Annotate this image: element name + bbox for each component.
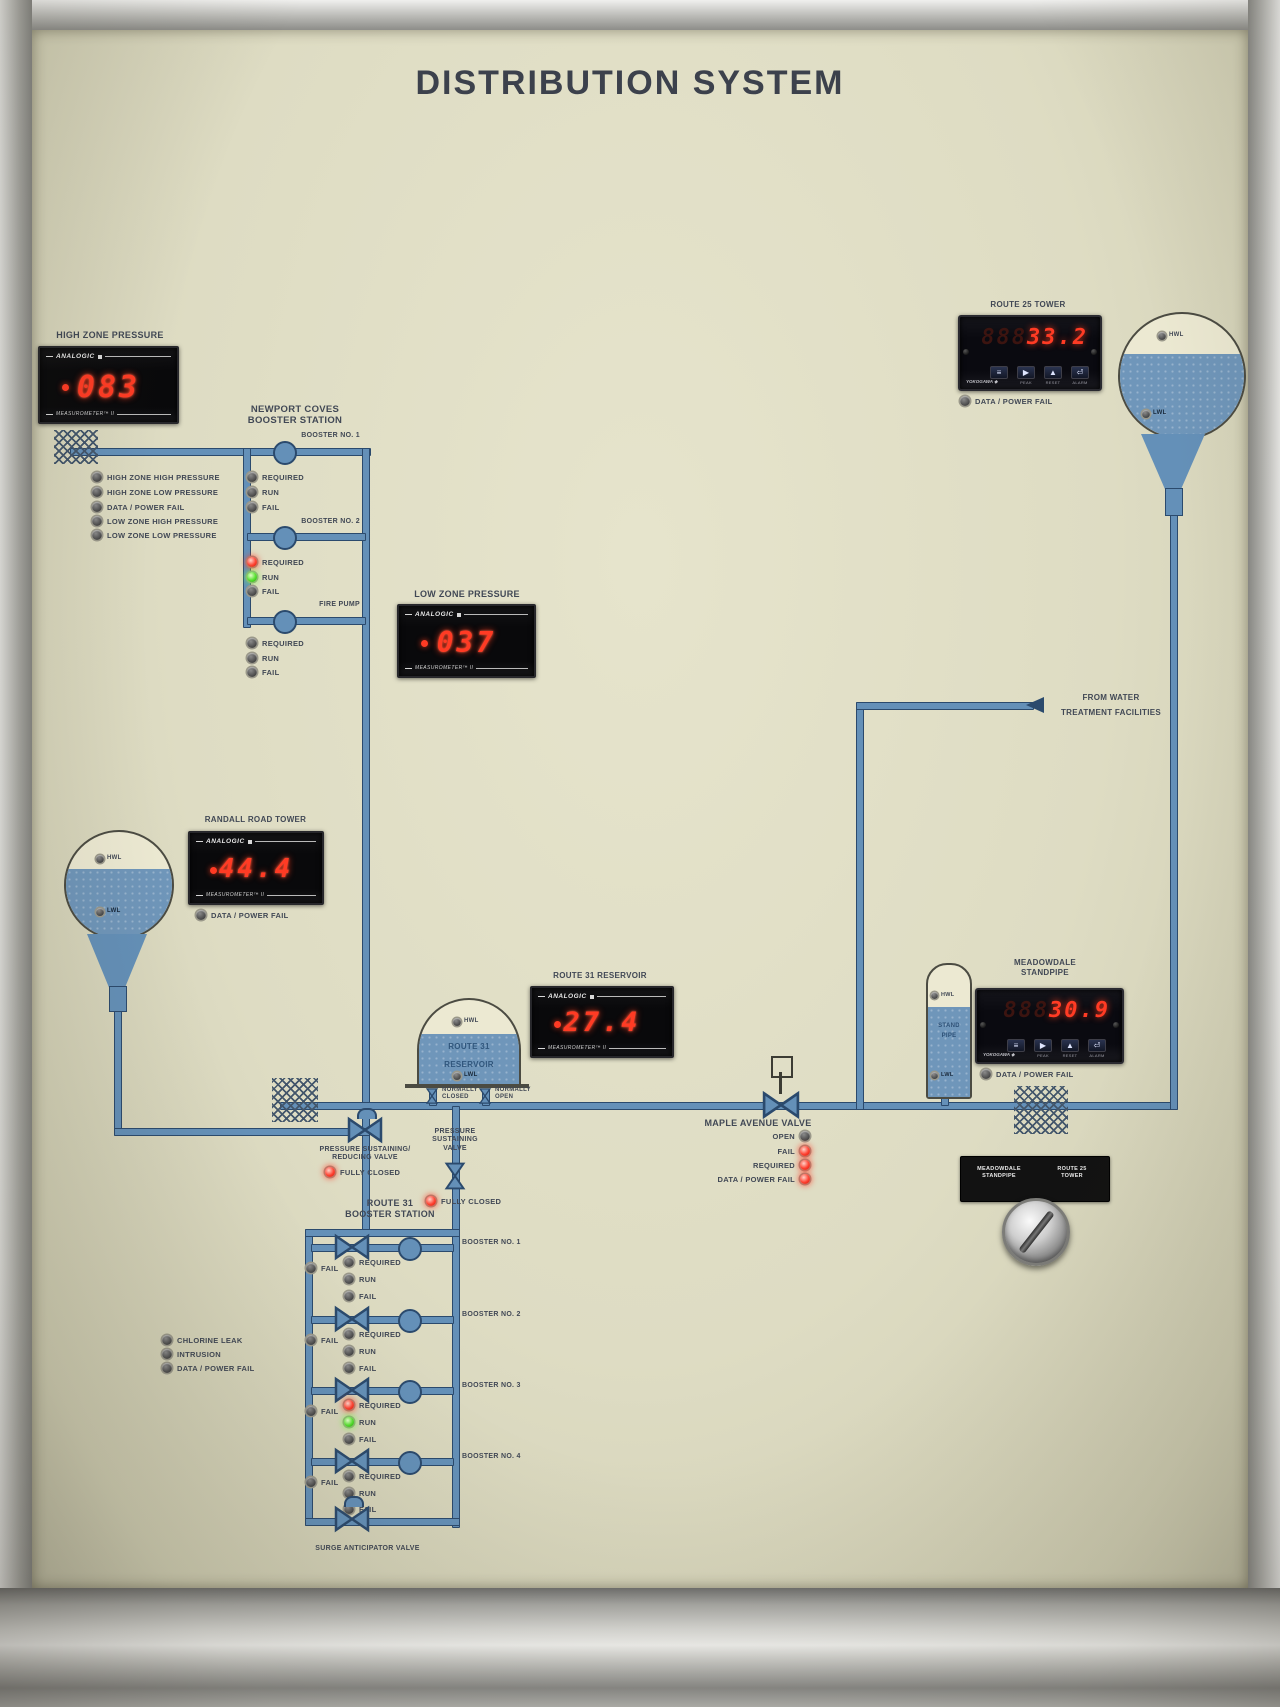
option-line: TOWER xyxy=(1041,1173,1103,1180)
pipe-route25-riser xyxy=(1170,512,1178,1110)
fully-closed-led xyxy=(325,1167,335,1177)
randall-level-meter: ANALOGIC 44.4 MEASUROMETER™ II xyxy=(188,831,324,905)
maple-row-datafail: DATA / POWER FAIL xyxy=(672,1174,810,1184)
booster2-light-row: FAIL xyxy=(344,1363,376,1373)
peak-button[interactable]: ▶ xyxy=(1034,1039,1052,1052)
yokogawa-brand: YOKOGAWA ◆ xyxy=(983,1052,1015,1058)
pipe-fromwater-riser xyxy=(856,702,864,1110)
label-line: REDUCING VALVE xyxy=(292,1154,438,1162)
title-line: ROUTE 31 xyxy=(330,1198,450,1209)
hwl-led xyxy=(453,1018,461,1026)
screw-icon xyxy=(963,349,969,355)
page-title: DISTRIBUTION SYSTEM xyxy=(390,64,870,103)
status-led xyxy=(247,653,257,663)
pipe-booster-branch-2 xyxy=(311,1316,454,1324)
analogic-brand: ANALOGIC xyxy=(206,838,245,845)
ps-reducing-valve-label: PRESSURE SUSTAINING/ REDUCING VALVE xyxy=(292,1146,438,1163)
alarm-led xyxy=(162,1363,172,1373)
status-led xyxy=(344,1417,354,1427)
zone-alarm-row: LOW ZONE HIGH PRESSURE xyxy=(92,516,218,526)
status-led xyxy=(344,1400,354,1410)
fail-label: FAIL xyxy=(321,1264,338,1273)
fire-pump-light-row: RUN xyxy=(247,653,279,663)
lwl-led xyxy=(931,1072,938,1079)
alarm-label: LOW ZONE LOW PRESSURE xyxy=(107,531,217,540)
fail-led xyxy=(306,1335,316,1345)
fail-led xyxy=(306,1263,316,1273)
hwl-led xyxy=(96,855,104,863)
status-led xyxy=(344,1434,354,1444)
status-label: RUN xyxy=(262,488,279,497)
randall-meter-label: RANDALL ROAD TOWER xyxy=(193,815,318,825)
hwl-label: HWL xyxy=(941,992,954,999)
hwl-led xyxy=(1158,332,1166,340)
meter-footer-row: MEASUROMETER™ II xyxy=(538,1045,666,1051)
status-led xyxy=(344,1291,354,1301)
status-led xyxy=(247,638,257,648)
route25-value: 33.2 xyxy=(1027,325,1088,350)
status-led xyxy=(344,1363,354,1373)
alarm-button[interactable]: ⏎ xyxy=(1088,1039,1106,1052)
display-button[interactable]: ≡ xyxy=(990,366,1008,379)
booster2-fail-row: FAIL xyxy=(306,1335,338,1345)
booster2-light-row: FAIL xyxy=(247,586,279,596)
status-label: REQUIRED xyxy=(359,1258,401,1267)
booster2-pump-icon xyxy=(398,1309,422,1333)
status-label: FAIL xyxy=(262,503,279,512)
yokogawa-brand: YOKOGAWA ◆ xyxy=(966,379,998,385)
fail-label: FAIL xyxy=(321,1336,338,1345)
pipe-randall-riser xyxy=(114,1008,122,1136)
ps-reducing-valve-icon xyxy=(347,1116,383,1144)
fully-closed-label: FULLY CLOSED xyxy=(441,1197,501,1206)
pipe-booster-branch-1 xyxy=(311,1244,454,1252)
frame-bottom xyxy=(0,1588,1280,1707)
row-led xyxy=(800,1160,810,1170)
frame-left xyxy=(0,0,32,1707)
status-label: REQUIRED xyxy=(359,1401,401,1410)
zone-alarm-row: LOW ZONE LOW PRESSURE xyxy=(92,530,217,540)
status-led xyxy=(344,1471,354,1481)
fail-label: DATA / POWER FAIL xyxy=(211,911,288,920)
label-line: SUSTAINING xyxy=(420,1136,490,1144)
fail-label: DATA / POWER FAIL xyxy=(996,1070,1073,1079)
randall-value: 44.4 xyxy=(190,854,322,884)
station-alarm-row: CHLORINE LEAK xyxy=(162,1335,243,1345)
meter-footer-row: MEASUROMETER™ II xyxy=(405,665,528,671)
label-line: OPEN xyxy=(495,1094,541,1101)
meter-brand-row: ANALOGIC xyxy=(196,838,316,845)
status-label: REQUIRED xyxy=(262,558,304,567)
normally-closed-valve-icon xyxy=(424,1089,440,1103)
booster3-pump-icon xyxy=(398,1380,422,1404)
alarm-led xyxy=(92,516,102,526)
button-label: RESET xyxy=(1063,1053,1078,1058)
label-line: PRESSURE SUSTAINING/ xyxy=(292,1146,438,1154)
meter-brand-row: ANALOGIC xyxy=(405,611,528,618)
reservoir-name-line2: RESERVOIR xyxy=(419,1060,519,1070)
maple-valve-title: MAPLE AVENUE VALVE xyxy=(678,1118,838,1129)
booster3-light-row: FAIL xyxy=(344,1434,376,1444)
booster2-light-row: REQUIRED xyxy=(247,557,304,567)
station-alarm-row: INTRUSION xyxy=(162,1349,221,1359)
station-booster4-name: BOOSTER NO. 4 xyxy=(462,1453,562,1461)
fire-pump-light-row: REQUIRED xyxy=(247,638,304,648)
maple-valve-icon xyxy=(762,1090,800,1120)
meter-footer-row: MEASUROMETER™ II xyxy=(46,411,171,417)
ghost-digits: 888 xyxy=(1003,998,1049,1023)
fail-led xyxy=(196,910,206,920)
high-zone-pressure-label: HIGH ZONE PRESSURE xyxy=(48,330,172,341)
randall-hwl: HWL xyxy=(96,855,122,863)
status-label: RUN xyxy=(359,1275,376,1284)
alarm-label: DATA / POWER FAIL xyxy=(177,1364,254,1373)
maple-row-fail: FAIL xyxy=(672,1146,810,1156)
reservoir-lwl: LWL xyxy=(453,1072,478,1080)
status-label: FAIL xyxy=(359,1364,376,1373)
randall-lwl: LWL xyxy=(96,908,121,916)
button-label: ALARM xyxy=(1072,380,1087,385)
hwl-label: HWL xyxy=(107,855,122,862)
maple-valve-actuator xyxy=(771,1056,793,1078)
newport-title-line2: BOOSTER STATION xyxy=(225,415,365,426)
measurometer-label: MEASUROMETER™ II xyxy=(415,665,473,671)
alarm-led xyxy=(92,472,102,482)
fully-closed-label: FULLY CLOSED xyxy=(340,1168,400,1177)
surge-valve-icon xyxy=(334,1505,370,1533)
route25-hwl: HWL xyxy=(1158,332,1184,340)
frame-top xyxy=(0,0,1280,30)
option-line: ROUTE 25 xyxy=(1041,1166,1103,1173)
low-zone-pressure-label: LOW ZONE PRESSURE xyxy=(402,589,532,600)
reservoir-name-line1: ROUTE 31 xyxy=(419,1042,519,1052)
measurometer-label: MEASUROMETER™ II xyxy=(206,892,264,898)
fail-led xyxy=(960,396,970,406)
route25-digits: 88833.2 xyxy=(981,325,1088,350)
randall-tower-stem-base xyxy=(109,986,127,1012)
status-label: FAIL xyxy=(262,668,279,677)
alarm-label: HIGH ZONE HIGH PRESSURE xyxy=(107,473,220,482)
route25-tower-label: ROUTE 25 TOWER xyxy=(958,300,1098,310)
alarm-led xyxy=(162,1349,172,1359)
status-led xyxy=(344,1346,354,1356)
booster3-light-row: REQUIRED xyxy=(344,1400,401,1410)
label-line2: STANDPIPE xyxy=(980,968,1110,978)
booster1-light-row: FAIL xyxy=(344,1291,376,1301)
randall-tower-symbol xyxy=(64,830,174,940)
status-led xyxy=(247,472,257,482)
booster2-light-row: RUN xyxy=(344,1346,376,1356)
route31-level-meter: ANALOGIC 27.4 MEASUROMETER™ II xyxy=(530,986,674,1058)
row-label: REQUIRED xyxy=(753,1161,795,1170)
status-label: FAIL xyxy=(262,587,279,596)
status-led xyxy=(344,1257,354,1267)
meter-brand-row: ANALOGIC xyxy=(538,993,666,1000)
status-led xyxy=(247,487,257,497)
analogic-brand: ANALOGIC xyxy=(56,353,95,360)
from-water-line1: FROM WATER xyxy=(1046,693,1176,703)
pipe-firepump-branch xyxy=(247,617,366,625)
booster1-pump-icon xyxy=(273,441,297,465)
standpipe-text-line1: STAND xyxy=(928,1023,970,1030)
zone-boundary-hatch-west xyxy=(272,1078,318,1122)
label-line: NORMALLY xyxy=(442,1087,488,1094)
pipe-booster-branch-3 xyxy=(311,1387,454,1395)
route25-lwl: LWL xyxy=(1142,410,1167,418)
measurometer-label: MEASUROMETER™ II xyxy=(548,1045,606,1051)
hwl-label: HWL xyxy=(1169,332,1184,339)
hwl-label: HWL xyxy=(464,1018,479,1025)
maple-row-required: REQUIRED xyxy=(672,1160,810,1170)
status-led xyxy=(247,572,257,582)
station-alarm-row: DATA / POWER FAIL xyxy=(162,1363,254,1373)
row-led xyxy=(800,1131,810,1141)
randall-fail-row: DATA / POWER FAIL xyxy=(196,910,288,920)
alarm-led xyxy=(162,1335,172,1345)
booster1-light-row: RUN xyxy=(344,1274,376,1284)
row-led xyxy=(800,1146,810,1156)
fire-pump-icon xyxy=(273,610,297,634)
status-led xyxy=(344,1329,354,1339)
label-line: PRESSURE xyxy=(420,1128,490,1136)
lwl-led xyxy=(96,908,104,916)
alarm-label: DATA / POWER FAIL xyxy=(107,503,184,512)
route31-station-title: ROUTE 31 BOOSTER STATION xyxy=(330,1198,450,1220)
status-label: RUN xyxy=(359,1418,376,1427)
status-led xyxy=(344,1274,354,1284)
status-label: RUN xyxy=(262,573,279,582)
booster4-fail-row: FAIL xyxy=(306,1477,338,1487)
row-label: FAIL xyxy=(778,1147,795,1156)
fire-pump-light-row: FAIL xyxy=(247,667,279,677)
lwl-label: LWL xyxy=(107,908,121,915)
lwl-label: LWL xyxy=(1153,410,1167,417)
route31-value: 27.4 xyxy=(532,1007,672,1038)
booster2-name: BOOSTER NO. 2 xyxy=(255,518,360,526)
screw-icon xyxy=(1091,349,1097,355)
station-booster3-name: BOOSTER NO. 3 xyxy=(462,1382,562,1390)
meadowdale-level-meter: 88830.9 ≡ ▶PEAK ▲RESET ⏎ALARM YOKOGAWA ◆ xyxy=(975,988,1124,1064)
status-label: RUN xyxy=(359,1489,376,1498)
pipe-highzone-main xyxy=(70,448,371,456)
status-label: FAIL xyxy=(359,1435,376,1444)
lwl-led xyxy=(453,1072,461,1080)
newport-station-title: NEWPORT COVES BOOSTER STATION xyxy=(225,404,365,427)
pipe-loop-top xyxy=(305,1229,460,1237)
route25-level-meter: 88833.2 ≡ ▶PEAK ▲RESET ⏎ALARM YOKOGAWA ◆ xyxy=(958,315,1102,391)
high-zone-pressure-value: 083 xyxy=(40,370,177,405)
alarm-led xyxy=(92,487,102,497)
water-level xyxy=(928,1007,970,1097)
fire-pump-name: FIRE PUMP xyxy=(255,601,360,609)
frame-right xyxy=(1248,0,1280,1707)
booster4-light-row: REQUIRED xyxy=(344,1471,401,1481)
hwl-led xyxy=(931,992,938,999)
fail-led xyxy=(306,1406,316,1416)
measurometer-label: MEASUROMETER™ II xyxy=(56,411,114,417)
pipe-booster2-branch xyxy=(247,533,366,541)
row-label: DATA / POWER FAIL xyxy=(718,1175,795,1184)
alarm-led xyxy=(92,502,102,512)
knob-pointer xyxy=(1018,1210,1054,1254)
fail-label: FAIL xyxy=(321,1407,338,1416)
meadowdale-meter-label: MEADOWDALE STANDPIPE xyxy=(980,958,1110,977)
fail-led xyxy=(306,1477,316,1487)
fail-led xyxy=(981,1069,991,1079)
screw-icon xyxy=(1113,1022,1119,1028)
maple-row-open: OPEN xyxy=(672,1131,810,1141)
row-label: OPEN xyxy=(773,1132,795,1141)
status-led xyxy=(247,502,257,512)
meter-buttons: ≡ ▶PEAK ▲RESET ⏎ALARM xyxy=(990,366,1089,385)
zone-alarm-row: DATA / POWER FAIL xyxy=(92,502,184,512)
lwl-label: LWL xyxy=(941,1072,954,1079)
status-label: RUN xyxy=(359,1347,376,1356)
selector-switch-plate: MEADOWDALE STANDPIPE ROUTE 25 TOWER xyxy=(960,1156,1110,1202)
booster2-pump-icon xyxy=(273,526,297,550)
low-zone-pressure-meter: ANALOGIC 037 MEASUROMETER™ II xyxy=(397,604,536,678)
from-water-line2: TREATMENT FACILITIES xyxy=(1038,708,1184,718)
display-button[interactable]: ≡ xyxy=(1007,1039,1025,1052)
button-label: PEAK xyxy=(1020,380,1032,385)
analogic-brand: ANALOGIC xyxy=(415,611,454,618)
booster1-fail-row: FAIL xyxy=(306,1263,338,1273)
pipe-booster-branch-4 xyxy=(311,1458,454,1466)
normally-closed-label: NORMALLYCLOSED xyxy=(442,1087,488,1101)
status-led xyxy=(247,557,257,567)
screw-icon xyxy=(980,1022,986,1028)
selector-knob[interactable] xyxy=(1002,1198,1070,1266)
normally-open-label: NORMALLYOPEN xyxy=(495,1087,541,1101)
booster1-light-row: REQUIRED xyxy=(344,1257,401,1267)
water-level xyxy=(1120,354,1244,438)
route31-meter-label: ROUTE 31 RESERVOIR xyxy=(525,971,675,981)
ps-reducing-fully-closed: FULLY CLOSED xyxy=(325,1167,400,1177)
surge-valve-label: SURGE ANTICIPATOR VALVE xyxy=(280,1545,455,1553)
pipe-fromwater-line xyxy=(856,702,1034,710)
alarm-label: LOW ZONE HIGH PRESSURE xyxy=(107,517,218,526)
booster3-fail-row: FAIL xyxy=(306,1406,338,1416)
peak-button[interactable]: ▶ xyxy=(1017,366,1035,379)
label-line1: MEADOWDALE xyxy=(980,958,1110,968)
status-label: RUN xyxy=(262,654,279,663)
ghost-digits: 888 xyxy=(981,325,1027,350)
label-line: NORMALLY xyxy=(495,1087,541,1094)
zone-boundary-hatch-east xyxy=(1014,1086,1068,1134)
station-booster2-name: BOOSTER NO. 2 xyxy=(462,1311,562,1319)
selector-left-option: MEADOWDALE STANDPIPE xyxy=(967,1166,1031,1179)
booster1-light-row: REQUIRED xyxy=(247,472,304,482)
zone-boundary-hatch-highzone xyxy=(54,430,98,464)
row-led xyxy=(800,1174,810,1184)
booster1-light-row: FAIL xyxy=(247,502,279,512)
selector-right-option: ROUTE 25 TOWER xyxy=(1041,1166,1103,1179)
booster2-light-row: REQUIRED xyxy=(344,1329,401,1339)
ps-valve-icon xyxy=(441,1162,469,1190)
booster4-pump-icon xyxy=(398,1451,422,1475)
meter-brand-row: ANALOGIC xyxy=(46,353,171,360)
meadowdale-fail-row: DATA / POWER FAIL xyxy=(981,1069,1073,1079)
alarm-led xyxy=(92,530,102,540)
alarm-label: CHLORINE LEAK xyxy=(177,1336,243,1345)
reset-button[interactable]: ▲ xyxy=(1044,366,1062,379)
standpipe-hwl: HWL xyxy=(931,992,954,999)
booster1-pump-icon xyxy=(398,1237,422,1261)
route25-tower-stem-base xyxy=(1165,488,1183,516)
analogic-brand: ANALOGIC xyxy=(548,993,587,1000)
pipe-randall-line xyxy=(114,1128,370,1136)
booster2-light-row: RUN xyxy=(247,572,279,582)
option-line: STANDPIPE xyxy=(967,1173,1031,1180)
meter-footer-row: MEASUROMETER™ II xyxy=(196,892,316,898)
button-label: PEAK xyxy=(1037,1053,1049,1058)
lwl-label: LWL xyxy=(464,1072,478,1079)
status-label: REQUIRED xyxy=(262,639,304,648)
alarm-button[interactable]: ⏎ xyxy=(1071,366,1089,379)
booster1-name: BOOSTER NO. 1 xyxy=(255,432,360,440)
alarm-label: HIGH ZONE LOW PRESSURE xyxy=(107,488,218,497)
distribution-panel-photo: DISTRIBUTION SYSTEM HIGH ZONE PRESSURE A… xyxy=(0,0,1280,1707)
standpipe-lwl: LWL xyxy=(931,1072,954,1079)
status-label: FAIL xyxy=(359,1292,376,1301)
zone-alarm-row: HIGH ZONE LOW PRESSURE xyxy=(92,487,218,497)
status-label: REQUIRED xyxy=(359,1472,401,1481)
low-zone-pressure-value: 037 xyxy=(399,626,534,659)
reset-button[interactable]: ▲ xyxy=(1061,1039,1079,1052)
fail-label: FAIL xyxy=(321,1478,338,1487)
station-booster1-name: BOOSTER NO. 1 xyxy=(462,1239,562,1247)
title-line: BOOSTER STATION xyxy=(330,1209,450,1220)
pipe-loop-bottom xyxy=(305,1518,460,1526)
status-led xyxy=(247,667,257,677)
meadowdale-digits: 88830.9 xyxy=(1003,998,1110,1023)
meter-buttons: ≡ ▶PEAK ▲RESET ⏎ALARM xyxy=(1007,1039,1106,1058)
booster1-light-row: RUN xyxy=(247,487,279,497)
fail-label: DATA / POWER FAIL xyxy=(975,397,1052,406)
status-label: REQUIRED xyxy=(262,473,304,482)
booster3-light-row: RUN xyxy=(344,1417,376,1427)
reservoir-hwl: HWL xyxy=(453,1018,479,1026)
button-label: ALARM xyxy=(1089,1053,1104,1058)
button-label: RESET xyxy=(1046,380,1061,385)
label-line: VALVE xyxy=(420,1145,490,1153)
label-line: CLOSED xyxy=(442,1094,488,1101)
route25-fail-row: DATA / POWER FAIL xyxy=(960,396,1052,406)
high-zone-pressure-meter: ANALOGIC 083 MEASUROMETER™ II xyxy=(38,346,179,424)
newport-title-line1: NEWPORT COVES xyxy=(225,404,365,415)
water-level xyxy=(66,869,172,938)
lwl-led xyxy=(1142,410,1150,418)
alarm-label: INTRUSION xyxy=(177,1350,221,1359)
ps-valve-label: PRESSURE SUSTAINING VALVE xyxy=(420,1128,490,1153)
status-label: REQUIRED xyxy=(359,1330,401,1339)
standpipe-text-line2: PIPE xyxy=(928,1033,970,1040)
status-led xyxy=(247,586,257,596)
meadowdale-value: 30.9 xyxy=(1049,998,1110,1023)
zone-alarm-row: HIGH ZONE HIGH PRESSURE xyxy=(92,472,220,482)
option-line: MEADOWDALE xyxy=(967,1166,1031,1173)
